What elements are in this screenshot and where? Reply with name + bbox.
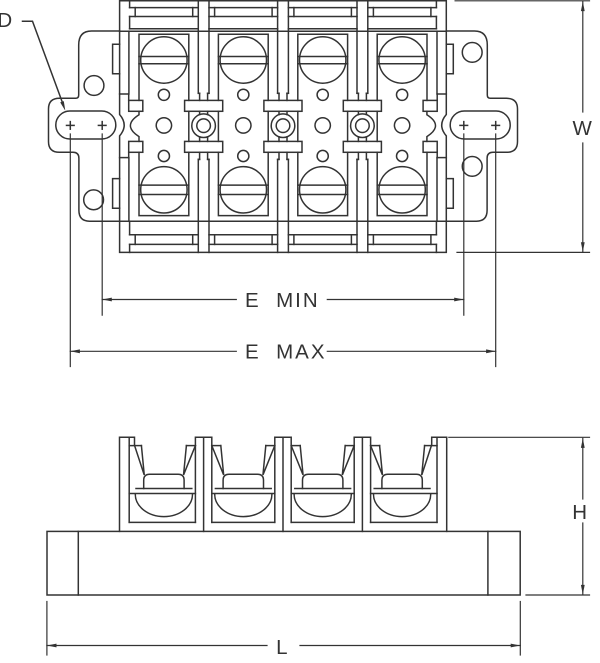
svg-text:L: L bbox=[276, 636, 289, 659]
svg-text:H: H bbox=[572, 501, 589, 524]
svg-text:W: W bbox=[573, 117, 594, 140]
svg-text:E MAX: E MAX bbox=[245, 340, 327, 363]
svg-text:D: D bbox=[0, 9, 14, 32]
svg-text:E MIN: E MIN bbox=[245, 289, 320, 312]
